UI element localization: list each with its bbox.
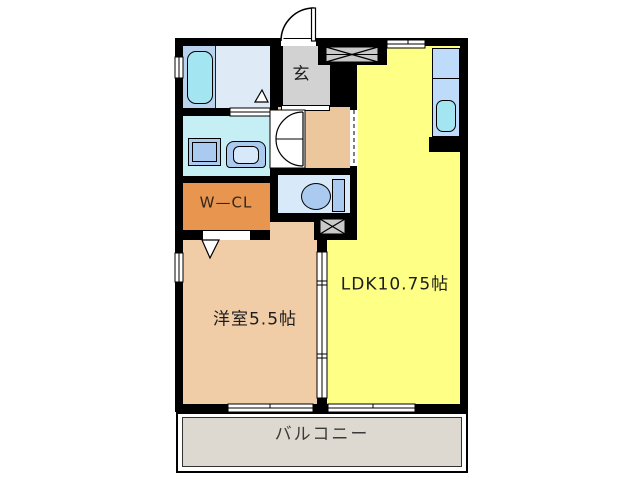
room-bathroom-floor <box>216 46 270 108</box>
entrance-door-icon <box>281 8 316 41</box>
toilet-tank-icon <box>332 179 345 212</box>
entrance-doorway-opening <box>281 38 316 46</box>
floor-plan-canvas: 玄 W—CL LDK10.75帖 洋室5.5帖 バルコニー <box>0 0 640 480</box>
balcony-label: バルコニー <box>275 427 370 444</box>
entrance-step <box>281 105 330 111</box>
washing-machine-icon <box>188 138 221 166</box>
kitchen-sink-icon <box>436 100 456 132</box>
room-ldk-lower <box>327 240 460 404</box>
wcl-label: W—CL <box>200 196 253 211</box>
western-room-label: 洋室5.5帖 <box>213 312 297 329</box>
bathtub-icon <box>187 51 213 104</box>
ldk-label: LDK10.75帖 <box>341 277 449 294</box>
kitchen-wall-block <box>429 137 468 152</box>
washbasin-icon <box>226 141 266 168</box>
toilet-bowl-icon <box>301 183 331 210</box>
wcl-doorway-opening <box>203 230 250 240</box>
room-hallway-lower <box>270 222 318 240</box>
entrance-label: 玄 <box>293 67 310 84</box>
vent-window-wall-block <box>318 43 387 65</box>
kitchen-counter-divider <box>432 78 460 79</box>
pipe-space-wall-block <box>314 213 350 240</box>
room-hallway-upper <box>278 107 350 168</box>
